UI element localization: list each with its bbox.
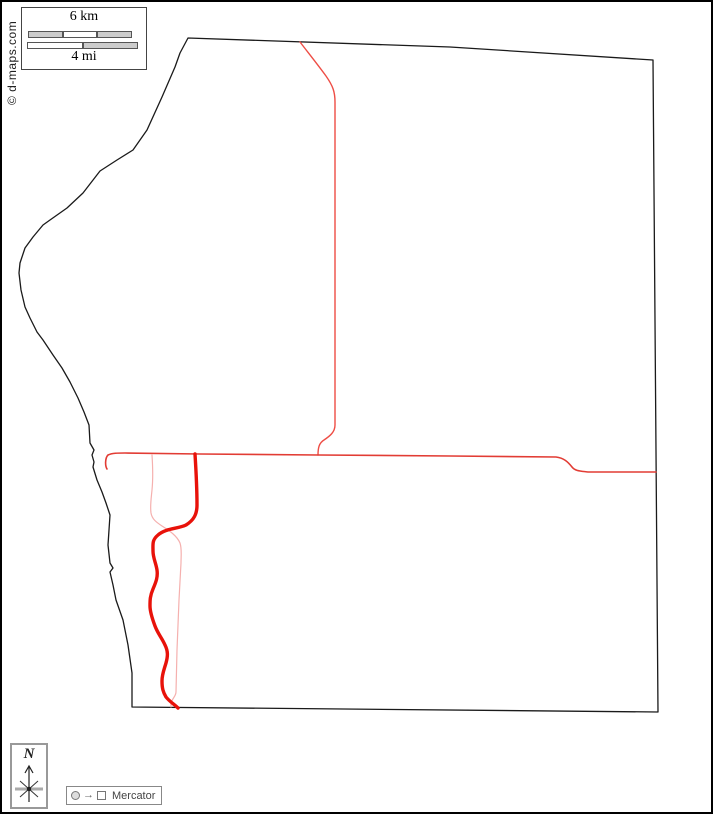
highway-major	[150, 454, 197, 708]
transform-arrow-icon: →	[83, 790, 94, 801]
projected-square-icon	[97, 791, 106, 800]
scale-mi-label: 4 mi	[22, 49, 146, 65]
copyright-notice: © d-maps.com	[5, 21, 19, 105]
km-scale-segment	[28, 31, 63, 38]
road-east-west	[106, 453, 656, 472]
map-page: 6 km 4 mi © d-maps.com N → Mercator	[0, 0, 713, 814]
compass-box: N	[10, 743, 48, 809]
scale-km-label: 6 km	[22, 9, 146, 25]
projection-legend: → Mercator	[66, 786, 162, 805]
road-north-south	[300, 42, 335, 455]
globe-circle-icon	[71, 791, 80, 800]
km-scale-segment	[97, 31, 132, 38]
km-scale-segment	[63, 31, 98, 38]
county-boundary	[19, 38, 658, 712]
mi-scale-bar	[27, 42, 138, 47]
mi-scale-segment	[83, 42, 139, 49]
county-outline-map	[0, 0, 713, 814]
scale-box: 6 km 4 mi	[21, 7, 147, 70]
projection-name: Mercator	[112, 790, 155, 802]
km-scale-bar	[28, 31, 132, 36]
north-arrow-icon	[14, 763, 44, 803]
mi-scale-segment	[27, 42, 83, 49]
north-label: N	[12, 745, 46, 763]
